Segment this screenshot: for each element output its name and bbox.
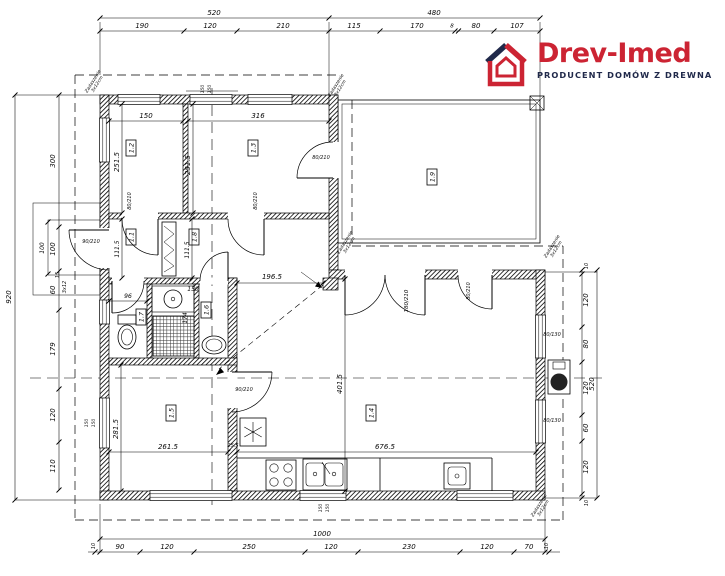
window-bottom-1 — [150, 491, 232, 501]
dim-label: 251.5 — [113, 151, 121, 172]
dim-label: 120 — [582, 381, 590, 395]
svg-text:1.7: 1.7 — [138, 311, 146, 322]
dim-label: 676.5 — [375, 443, 396, 451]
dim-label: 120 — [160, 543, 174, 551]
sink-1.6-icon — [202, 336, 226, 354]
svg-text:1.5: 1.5 — [168, 408, 176, 418]
door-size-label: 80/210 — [466, 282, 472, 300]
svg-text:1.1: 1.1 — [128, 232, 136, 242]
dim-label: 250 — [242, 543, 256, 551]
dim-label: 480 — [427, 9, 441, 17]
svg-text:1.6: 1.6 — [203, 305, 211, 315]
window-mark: 150 — [84, 419, 90, 428]
dim-label: 300 — [49, 154, 57, 168]
dim-label: 10 — [91, 543, 97, 549]
dim-label: 80 — [472, 22, 481, 30]
dim-label: 60 — [582, 423, 590, 432]
dim-label: 70 — [525, 543, 534, 551]
dim-label: 150 — [187, 286, 199, 293]
dim-label: 230 — [402, 543, 416, 551]
door-size-label: 80/210 — [127, 192, 133, 210]
wall-block-right — [329, 95, 338, 270]
stove-icon — [266, 460, 296, 490]
window-left-2 — [100, 300, 110, 324]
dim-label: 100 — [49, 242, 57, 256]
dim-label: 261.5 — [158, 443, 179, 451]
dim-label: 210 — [276, 22, 290, 30]
window-left-1 — [100, 118, 110, 162]
door-size-label: 180/210 — [404, 289, 410, 312]
dim-label: 107 — [510, 22, 524, 30]
svg-text:1.3: 1.3 — [250, 143, 258, 153]
window-left-3 — [100, 398, 110, 448]
dim-label: 115 — [347, 22, 361, 30]
dim-label: 170 — [410, 22, 424, 30]
brand-name: Drev-Imed — [537, 40, 712, 67]
svg-text:1.9: 1.9 — [429, 172, 437, 182]
house-logo-icon — [482, 40, 528, 90]
dim-label: 90 — [116, 543, 125, 551]
window-mark: 150 — [318, 504, 324, 513]
wall-corner-column — [323, 278, 338, 290]
dim-label: 111.5 — [114, 240, 121, 257]
dim-label: 10 — [584, 263, 590, 269]
door-size-label: 80/210 — [312, 155, 330, 161]
dim-label: 25.5 — [227, 443, 238, 449]
dim-label: 1000 — [313, 530, 331, 538]
dim-label: 251.5 — [184, 154, 192, 175]
dim-label: 3x12 — [62, 281, 68, 294]
door-size-label: 90/210 — [82, 239, 100, 245]
window-bottom-3 — [457, 491, 513, 501]
dim-label: 10 — [584, 500, 590, 506]
dim-label: 120 — [324, 543, 338, 551]
window-mark: 150 — [207, 85, 213, 94]
dim-label: 196.5 — [262, 273, 283, 281]
floor-plan-page: Drev-Imed PRODUCENT DOMÓW Z DREWNA — [0, 0, 725, 576]
wall-bath-left — [147, 284, 152, 358]
furnace-icon — [548, 360, 570, 394]
kitchen-sink-icon — [303, 459, 347, 490]
dim-label: 150 — [139, 112, 153, 120]
window-size-label: 80/130 — [543, 418, 561, 424]
dim-label: 281.5 — [112, 418, 120, 439]
svg-text:1.2: 1.2 — [128, 143, 136, 153]
dim-label: 120 — [582, 460, 590, 474]
dim-label: 15 — [55, 272, 61, 278]
window-top-3 — [248, 95, 292, 105]
dim-label: 10 — [544, 543, 550, 549]
svg-text:1.4: 1.4 — [368, 408, 376, 418]
wall-bath-south — [109, 358, 237, 365]
dim-label: 100 — [39, 242, 46, 254]
wall-right — [536, 270, 545, 500]
brand-logo: Drev-Imed PRODUCENT DOMÓW Z DREWNA — [482, 40, 712, 90]
dim-label: 120 — [480, 543, 494, 551]
dim-label: 174 — [182, 312, 189, 324]
dim-label: 120 — [203, 22, 217, 30]
dim-label: 920 — [5, 290, 13, 304]
window-mark: 150 — [91, 419, 97, 428]
dim-label: 96 — [124, 293, 132, 300]
door-size-label: 80/210 — [253, 192, 259, 210]
svg-text:1.8: 1.8 — [191, 232, 199, 242]
window-size-label: 80/130 — [543, 332, 561, 338]
dim-label: 179 — [49, 342, 57, 356]
wall-bath-right — [194, 284, 199, 358]
dim-label: 111.5 — [184, 241, 191, 258]
toilet-icon — [118, 315, 136, 349]
dim-label: 8 — [450, 24, 454, 30]
dim-label: 190 — [135, 22, 149, 30]
dim-label: 80 — [582, 339, 590, 348]
small-sink-icon — [444, 463, 470, 489]
brand-tagline: PRODUCENT DOMÓW Z DREWNA — [537, 70, 712, 80]
dim-label: 110 — [49, 459, 57, 473]
fridge-icon — [240, 418, 266, 446]
door-size-label: 90/210 — [235, 387, 253, 393]
dim-label: 60 — [49, 285, 57, 294]
window-mark: 150 — [200, 85, 206, 94]
dim-label: 401.5 — [336, 373, 344, 394]
window-mark: 150 — [325, 504, 331, 513]
dim-label: 316 — [251, 112, 265, 120]
dim-label: 120 — [582, 293, 590, 307]
window-bottom-2 — [300, 491, 346, 501]
window-top-1 — [118, 95, 160, 105]
dim-label: 120 — [49, 408, 57, 422]
dim-label: 520 — [207, 9, 221, 17]
